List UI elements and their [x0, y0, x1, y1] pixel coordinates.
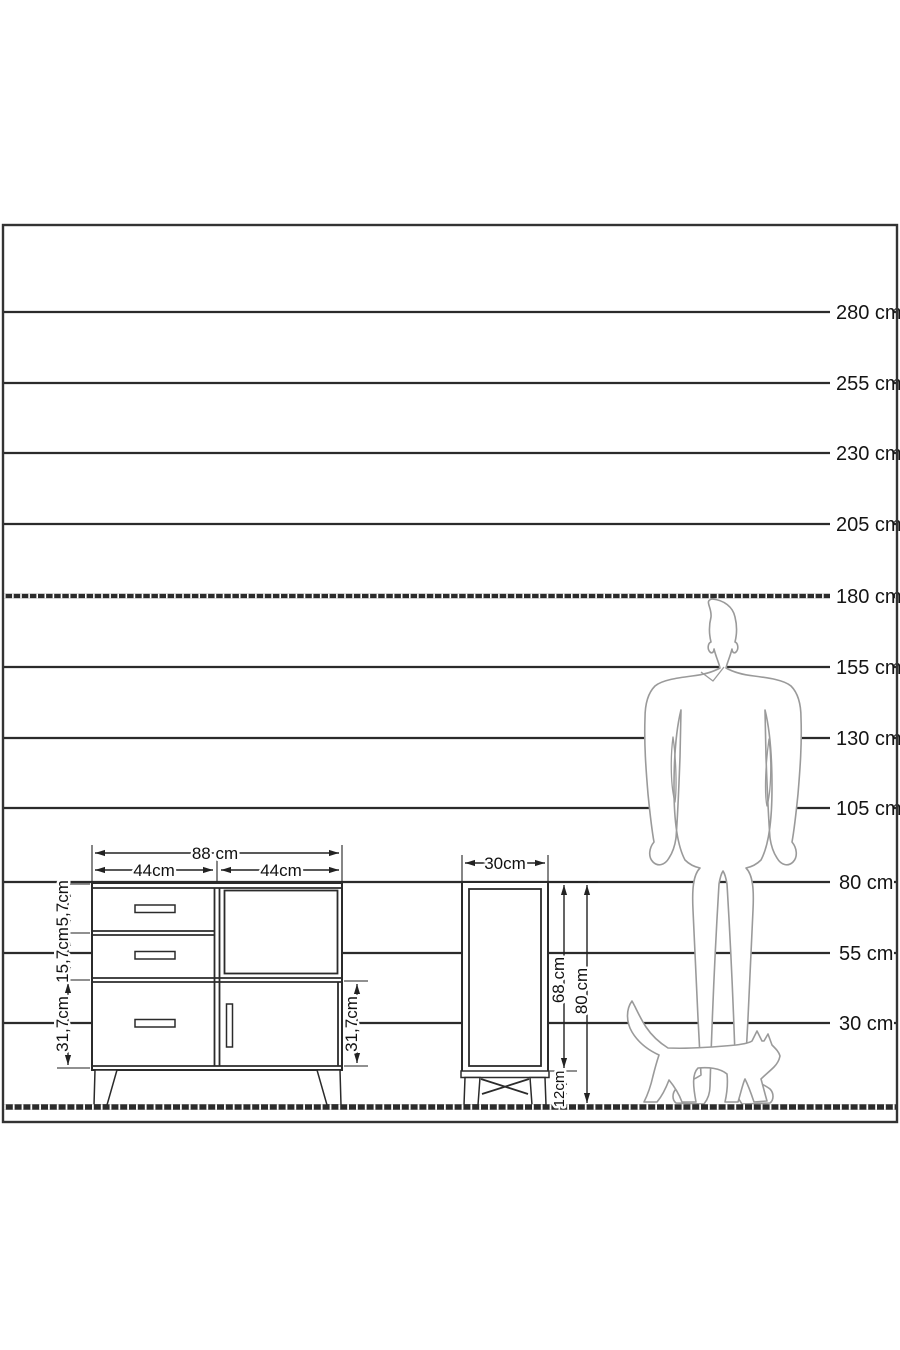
dim-cabinet-body-height: 68 cm — [549, 957, 568, 1003]
drawer-handle-2 — [135, 952, 175, 960]
scale-label-230: 230 cm — [836, 443, 900, 465]
dim-cabinet-leg-height: 12cm — [551, 1071, 568, 1108]
scale-label-80: 80 cm — [839, 872, 893, 894]
dim-cabinet-total-height: 80 cm — [572, 968, 591, 1014]
sideboard-body — [92, 883, 342, 1070]
scale-label-280: 280 cm — [836, 302, 900, 324]
dim-sideboard-total-width: 88 cm — [192, 844, 238, 863]
drawer-handle-1 — [135, 905, 175, 913]
cabinet-right-leg — [530, 1078, 546, 1106]
scale-label-205: 205 cm — [836, 514, 900, 536]
dim-sideboard-right-width: 44cm — [260, 861, 302, 880]
dim-sideboard-left-width: 44cm — [133, 861, 175, 880]
scale-label-55: 55 cm — [839, 943, 893, 965]
furniture-dimension-diagram: 88 cm 44cm 44cm 15,7cm 15,7cm 31,7cm 31,… — [0, 0, 900, 1350]
scale-label-155: 155 cm — [836, 657, 900, 679]
cabinet-base-rail — [461, 1071, 549, 1078]
scale-label-255: 255 cm — [836, 373, 900, 395]
drawer-handle-3 — [135, 1020, 175, 1028]
dim-door-height: 31,7cm — [342, 996, 361, 1052]
side-cabinet-drawing — [461, 882, 549, 1105]
scale-label-180: 180 cm — [836, 586, 900, 608]
scale-label-130: 130 cm — [836, 728, 900, 750]
cabinet-left-leg — [464, 1078, 480, 1106]
cabinet-body — [462, 882, 548, 1072]
dim-cabinet-width: 30cm — [484, 854, 526, 873]
dim-bottom-drawer-height: 31,7cm — [53, 996, 72, 1052]
door-handle — [227, 1004, 233, 1047]
dim-middle-drawer-height: 15,7cm — [53, 927, 72, 983]
scale-label-30: 30 cm — [839, 1013, 893, 1035]
dimension-diagram-canvas: 88 cm 44cm 44cm 15,7cm 15,7cm 31,7cm 31,… — [0, 0, 900, 1350]
scale-label-105: 105 cm — [836, 798, 900, 820]
